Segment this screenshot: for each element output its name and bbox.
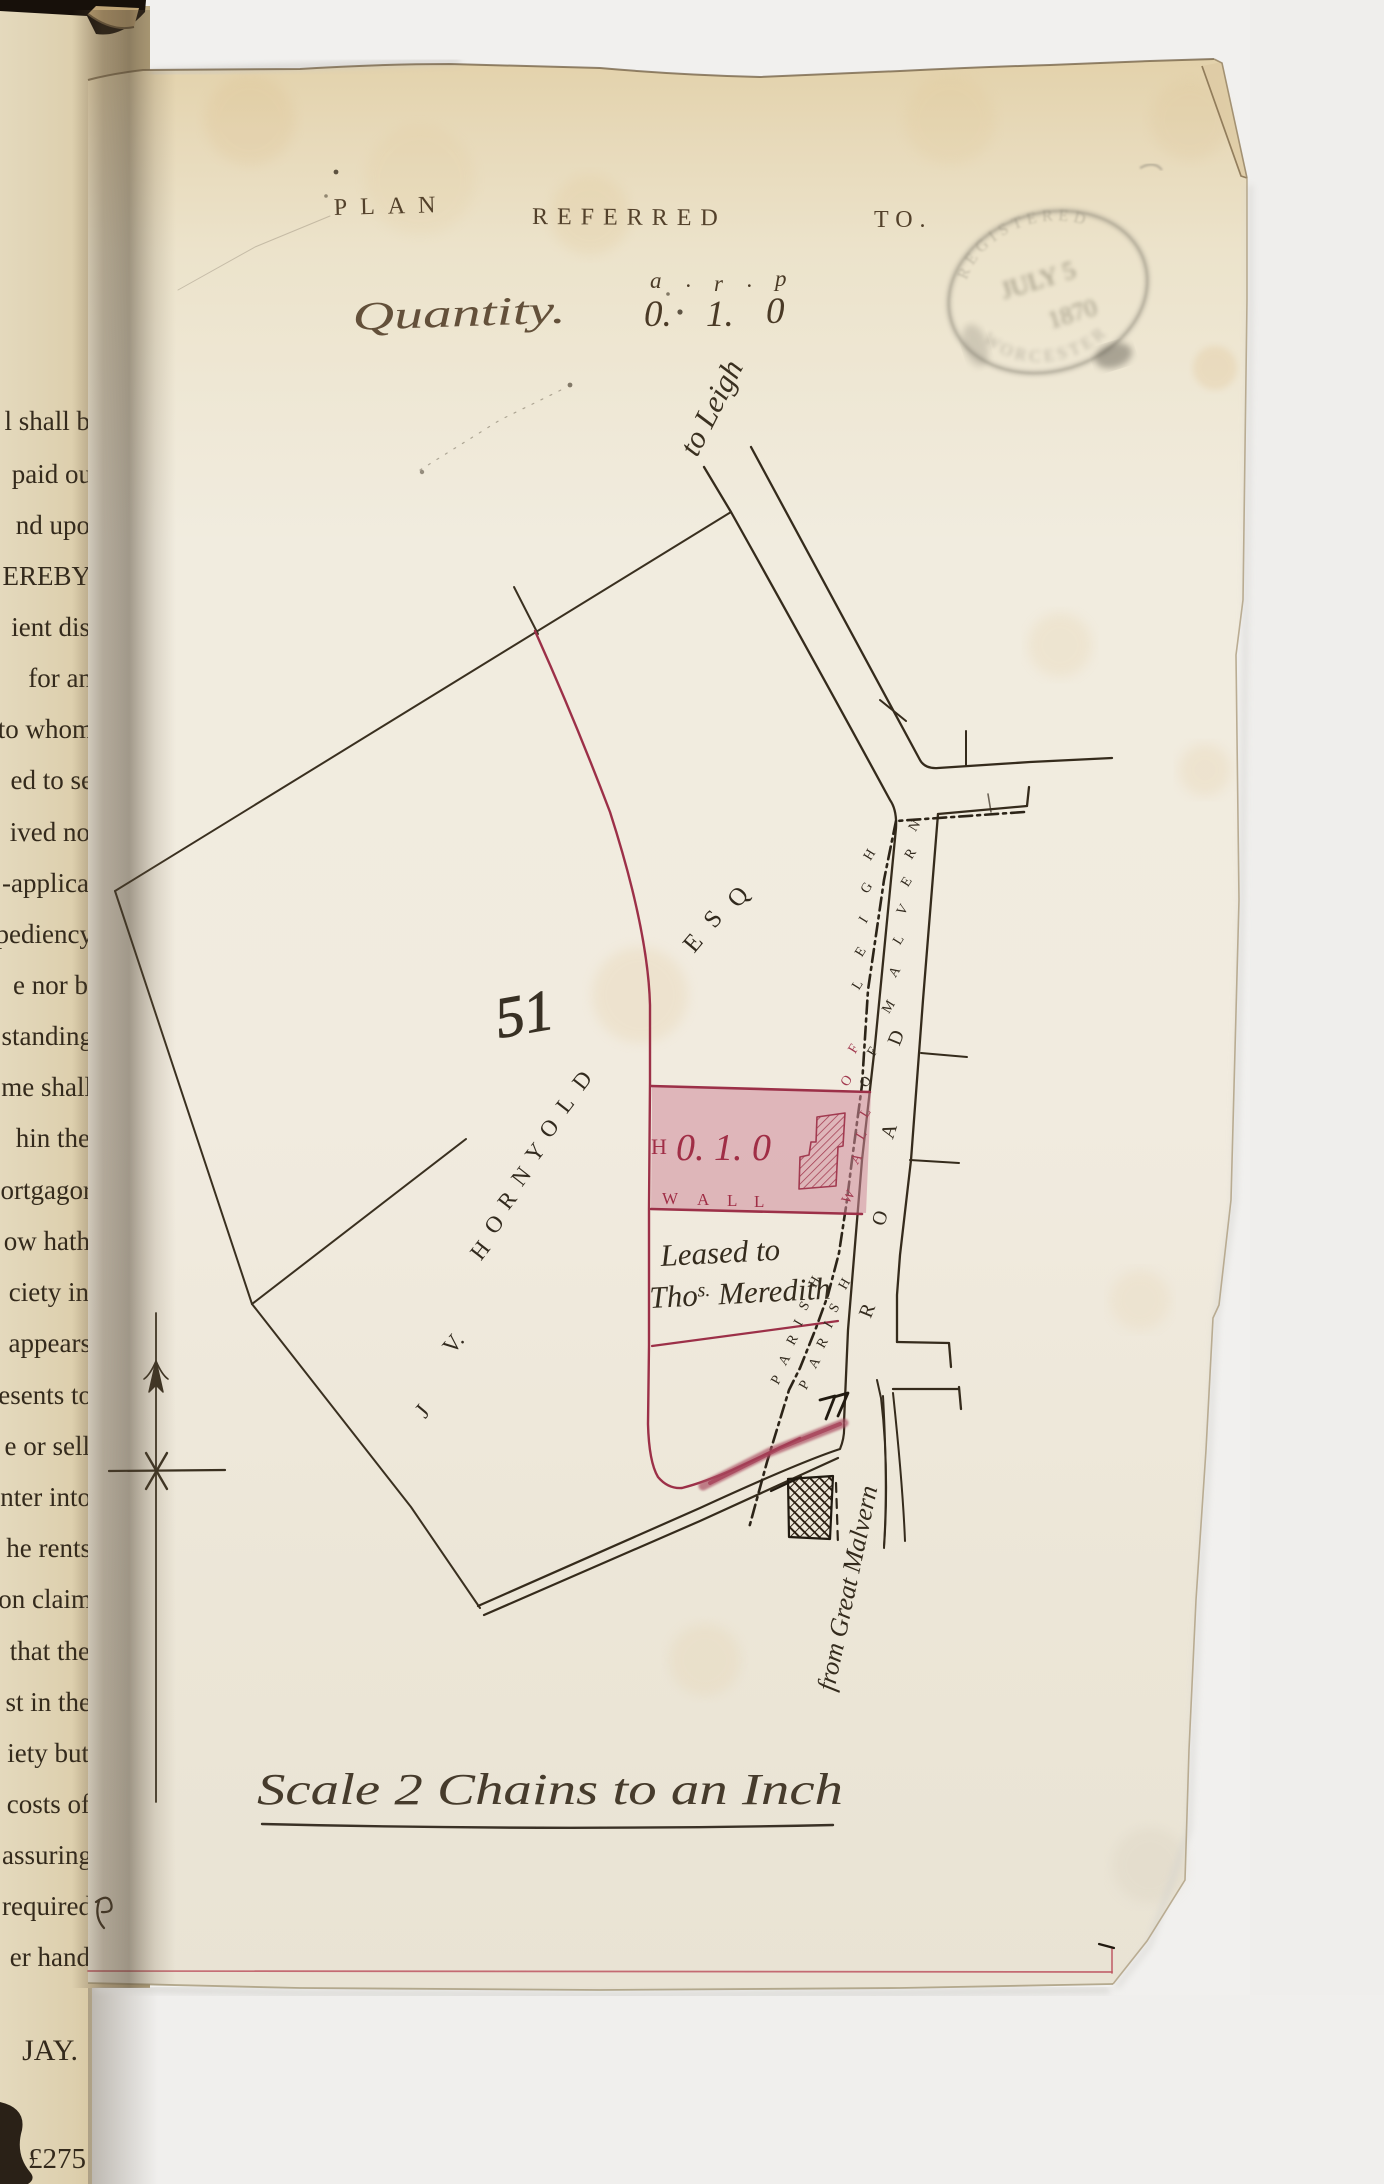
svg-text:51: 51	[490, 977, 558, 1051]
svg-text:.: .	[747, 267, 753, 292]
svg-text:£275: £275	[28, 2143, 86, 2175]
svg-text:TO.: TO.	[874, 207, 933, 233]
svg-text:p: p	[773, 266, 787, 291]
svg-text:Scale 2 Chains to an Inch: Scale 2 Chains to an Inch	[257, 1765, 843, 1814]
svg-text:L: L	[754, 1192, 764, 1211]
svg-text:REFERRED: REFERRED	[532, 204, 727, 231]
svg-text:.: .	[686, 267, 692, 292]
svg-text:PLAN: PLAN	[333, 192, 448, 221]
svg-text:0: 0	[766, 291, 785, 332]
svg-text:0.: 0.	[644, 294, 672, 335]
svg-text:H: H	[651, 1134, 667, 1159]
svg-text:1.: 1.	[706, 294, 734, 335]
svg-text:A: A	[697, 1190, 710, 1209]
svg-text:a: a	[650, 268, 662, 293]
svg-text:Quantity.: Quantity.	[352, 287, 566, 339]
svg-text:0. 1. 0: 0. 1. 0	[676, 1127, 771, 1169]
svg-text:JAY.: JAY.	[22, 2034, 78, 2067]
svg-text:Leased to: Leased to	[659, 1232, 781, 1273]
svg-text:r: r	[714, 271, 724, 296]
svg-text:W: W	[662, 1189, 679, 1208]
svg-text:L: L	[727, 1191, 737, 1210]
